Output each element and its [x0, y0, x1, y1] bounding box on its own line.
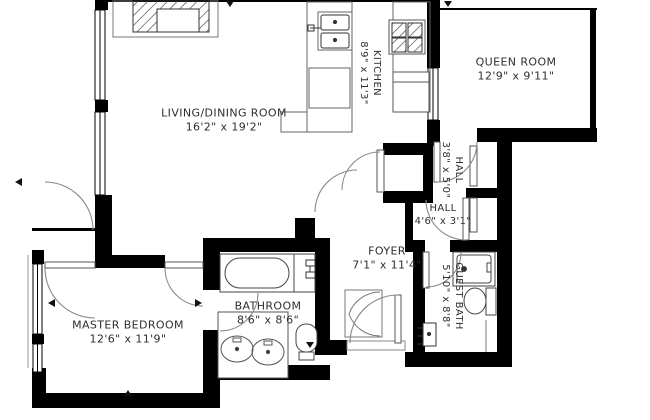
- room-label-foyer: FOYER 7'1" x 11'4": [352, 245, 421, 274]
- room-label-master-bedroom: MASTER BEDROOM 12'6" x 11'9": [72, 319, 184, 348]
- room-label-queen-room: QUEEN ROOM 12'9" x 9'11": [476, 56, 557, 85]
- laundry-door-leaf: [377, 150, 384, 192]
- room-label-living-dining: LIVING/DINING ROOM 16'2" x 19'2": [161, 107, 287, 136]
- room-name: HALL: [415, 202, 472, 215]
- room-dims: 8'6" x 8'6": [235, 314, 302, 328]
- room-name: HALL: [452, 142, 465, 199]
- room-dims: 3'8" x 5'0": [439, 142, 452, 199]
- master-door2-arc: [165, 268, 203, 306]
- room-dims: 8'9" x 11'3": [357, 41, 370, 105]
- master-door2-leaf: [165, 262, 203, 268]
- master-door-arc: [45, 268, 95, 318]
- room-dims: 7'1" x 11'4": [352, 259, 421, 273]
- kitchen-sink-icon: [308, 12, 352, 50]
- room-dims: 4'6" x 3'1": [415, 215, 472, 228]
- refrigerator-icon: [393, 72, 429, 112]
- tub-faucet-icon: [306, 260, 315, 278]
- living-door-arc: [45, 182, 93, 230]
- master-window-icon: [28, 255, 42, 372]
- room-label-guest-bath: GUEST BATH 5'10" x 8'8": [439, 262, 465, 330]
- bathtub-icon: [220, 254, 315, 292]
- room-dims: 5'10" x 8'8": [439, 262, 452, 330]
- guestbath-door-leaf: [423, 252, 429, 288]
- room-name: BATHROOM: [235, 300, 302, 314]
- room-dims: 12'9" x 9'11": [476, 70, 557, 84]
- room-name: GUEST BATH: [452, 262, 465, 330]
- room-name: KITCHEN: [370, 41, 383, 105]
- fireplace-icon: [113, 1, 218, 37]
- floorplan: LIVING/DINING ROOM 16'2" x 19'2" KITCHEN…: [0, 0, 650, 420]
- room-name: MASTER BEDROOM: [72, 319, 184, 333]
- room-dims: 12'6" x 11'9": [72, 333, 184, 347]
- stove-icon: [389, 20, 425, 54]
- room-name: FOYER: [352, 245, 421, 259]
- room-dims: 16'2" x 19'2": [161, 121, 287, 135]
- foyer-door-arc: [315, 170, 357, 212]
- room-label-bathroom: BATHROOM 8'6" x 8'6": [235, 300, 302, 329]
- entry-door-leaf: [395, 295, 401, 343]
- room-name: QUEEN ROOM: [476, 56, 557, 70]
- master-door-leaf: [45, 262, 95, 268]
- room-name: LIVING/DINING ROOM: [161, 107, 287, 121]
- room-label-kitchen: KITCHEN 8'9" x 11'3": [357, 41, 383, 105]
- room-label-hall-lower: HALL 4'6" x 3'1": [415, 202, 472, 228]
- foyer-closet-icon: [345, 290, 382, 337]
- guest-toilet-icon: [464, 288, 496, 315]
- room-label-hall-upper: HALL 3'8" x 5'0": [439, 142, 465, 199]
